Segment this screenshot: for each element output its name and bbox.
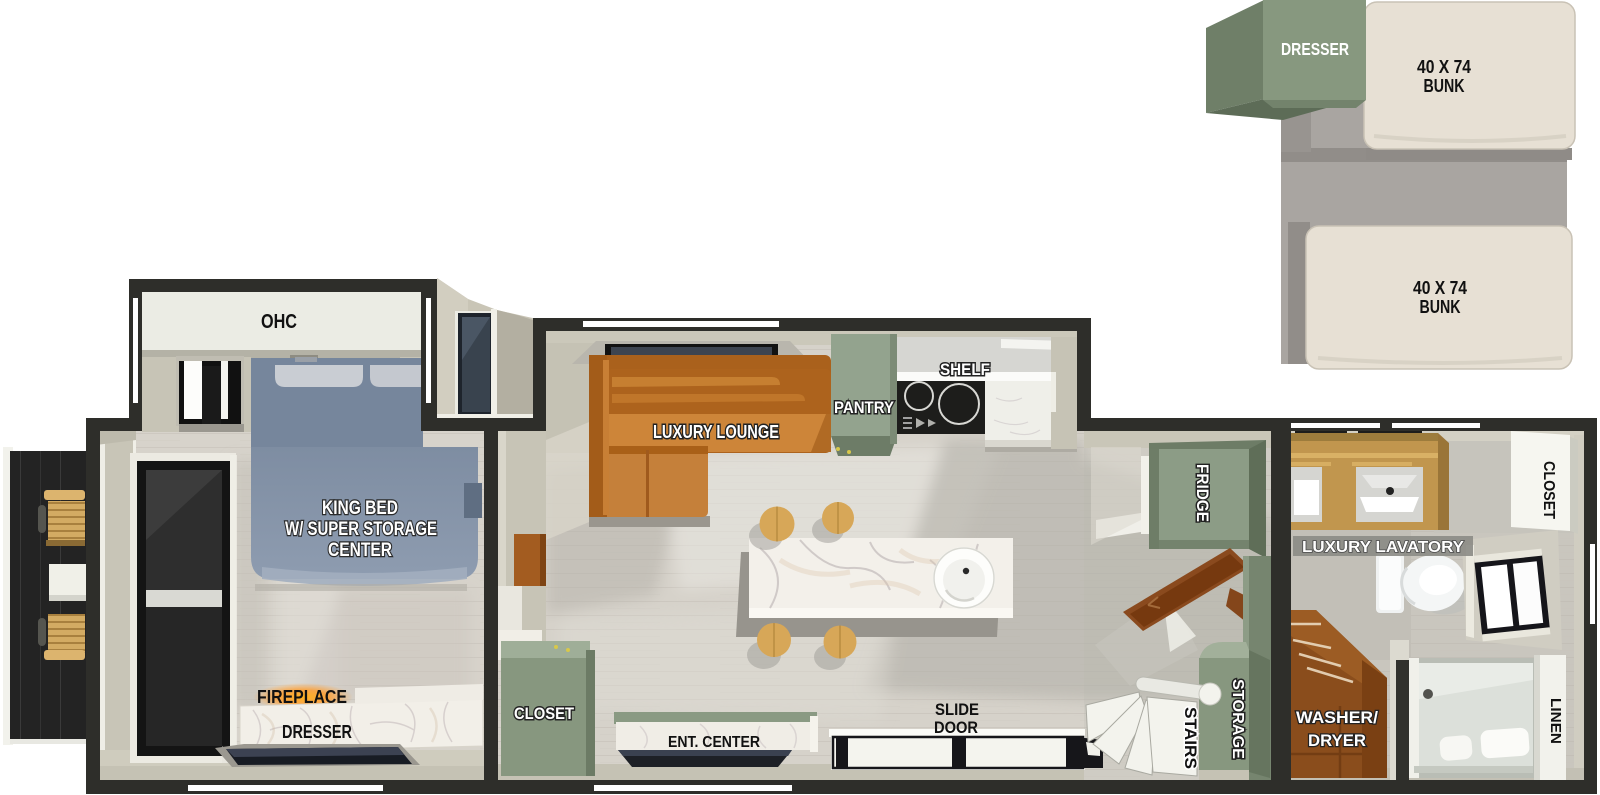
svg-text:LINEN: LINEN <box>1547 698 1564 744</box>
svg-text:LUXURY LOUNGE: LUXURY LOUNGE <box>653 422 779 442</box>
svg-text:DRESSER: DRESSER <box>282 722 352 742</box>
svg-text:CENTER: CENTER <box>328 540 392 561</box>
svg-text:CLOSET: CLOSET <box>1540 461 1557 519</box>
svg-text:CLOSET: CLOSET <box>514 704 575 723</box>
svg-text:DOOR: DOOR <box>934 718 978 737</box>
svg-text:LUXURY LAVATORY: LUXURY LAVATORY <box>1302 539 1464 556</box>
svg-text:FIREPLACE: FIREPLACE <box>257 687 347 707</box>
svg-text:BUNK: BUNK <box>1424 76 1465 96</box>
svg-text:WASHER/: WASHER/ <box>1296 708 1378 727</box>
svg-text:STORAGE: STORAGE <box>1229 679 1246 759</box>
svg-text:40 X 74: 40 X 74 <box>1417 57 1471 77</box>
svg-text:40 X 74: 40 X 74 <box>1413 278 1467 298</box>
svg-text:DRESSER: DRESSER <box>1281 39 1349 59</box>
svg-text:KING BED: KING BED <box>322 498 398 519</box>
svg-text:W/ SUPER STORAGE: W/ SUPER STORAGE <box>285 519 437 540</box>
svg-text:BUNK: BUNK <box>1420 297 1461 317</box>
svg-text:ENT. CENTER: ENT. CENTER <box>668 734 760 751</box>
svg-text:OHC: OHC <box>261 311 297 333</box>
svg-text:DRYER: DRYER <box>1308 731 1366 750</box>
svg-text:SLIDE: SLIDE <box>935 700 979 719</box>
svg-text:FRIDGE: FRIDGE <box>1193 464 1212 522</box>
svg-text:PANTRY: PANTRY <box>834 398 895 417</box>
svg-text:SHELF: SHELF <box>940 360 990 379</box>
svg-text:STAIRS: STAIRS <box>1181 707 1200 769</box>
